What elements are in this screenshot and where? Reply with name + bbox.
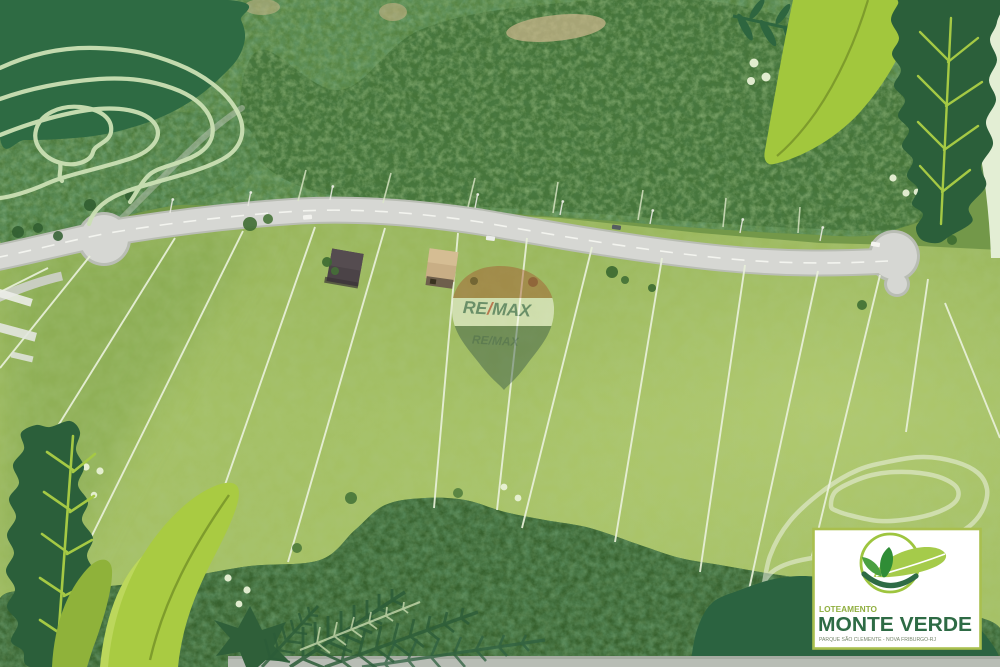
svg-text:RE/MAX: RE/MAX xyxy=(472,333,520,349)
svg-text:MONTE VERDE: MONTE VERDE xyxy=(818,613,972,636)
svg-text:RE/MAX: RE/MAX xyxy=(462,297,532,321)
svg-text:PARQUE SÃO CLEMENTE - NOVA FRI: PARQUE SÃO CLEMENTE - NOVA FRIBURGO-RJ xyxy=(819,636,936,643)
